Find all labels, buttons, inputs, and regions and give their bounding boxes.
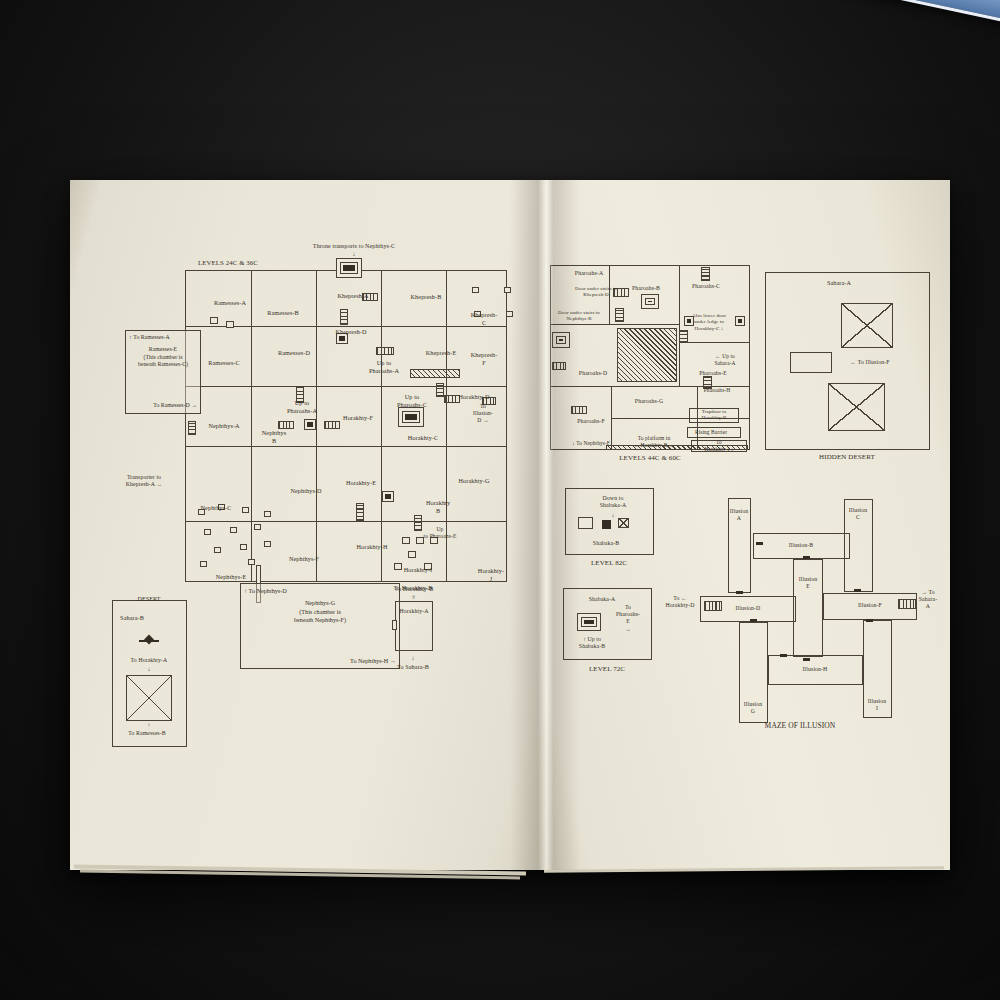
map-label: Shabaka-B xyxy=(593,540,619,547)
map-label: Illusion E xyxy=(799,576,818,590)
map-label: → To Sahara-A xyxy=(917,589,939,611)
map-label: Pharoahs-E xyxy=(699,370,727,377)
hidden-desert-panel: Sahara-A← To Illusion-FHIDDEN DESERT xyxy=(765,272,930,450)
map-label: ← To Illusion-F xyxy=(851,359,890,366)
map-label: LEVEL 72C xyxy=(589,665,625,674)
map-label: ↓ To Nephthys-F xyxy=(572,440,610,447)
desert-panel: DESERTSahara-BTo Horakhty-A↓↑To Ramesses… xyxy=(112,600,187,747)
map-label: Pharoahs-F xyxy=(577,418,604,425)
map-label: Also lower door under ledge to Horakhty-… xyxy=(692,313,726,332)
map-label: Illusion G xyxy=(744,701,763,715)
map-label: ↑ xyxy=(411,593,414,601)
map-label: Transporter to Khepresh-A → xyxy=(126,474,162,488)
level72-labels: Shabaka-ATo Pharoahs-E →↑ Up to Shabaka-… xyxy=(564,589,651,659)
map-label: To platform in ← Horakhty-B → xyxy=(634,435,675,449)
map-label: DESERT xyxy=(138,596,161,604)
map-label: To Sahara-B xyxy=(397,663,429,671)
map-label: Illusion I xyxy=(868,698,887,712)
maze-of-illusion: Illusion AIllusion CIllusion-BIllusion E… xyxy=(670,498,950,743)
map-label: Illusion-B xyxy=(789,542,814,549)
blue-object xyxy=(841,0,1000,50)
map-label: Horakhty-A xyxy=(399,608,428,615)
desert-labels: DESERTSahara-BTo Horakhty-A↓↑To Ramesses… xyxy=(113,601,186,746)
map-label: Down to Shabaka-A xyxy=(600,495,627,509)
booklet: LEVELS 24C & 36CThrone transports to Nep… xyxy=(70,180,950,870)
map-label: Rising Barrier xyxy=(695,429,727,436)
map-label: Trapdoor to Horakhty-B xyxy=(702,409,727,422)
map-label: Pharoahs-B xyxy=(632,285,660,292)
map-label: HIDDEN DESERT xyxy=(819,453,875,462)
map-label: Shabaka-A xyxy=(589,596,616,603)
map-label: Sahara-B xyxy=(120,614,144,622)
maze-labels: Illusion AIllusion CIllusion-BIllusion E… xyxy=(670,498,950,743)
hidden-desert-labels: Sahara-A← To Illusion-FHIDDEN DESERT xyxy=(766,273,929,449)
map-label: Door under stairs to Khepresh-D xyxy=(575,286,617,299)
map-label: ← Up to Sahara-A xyxy=(714,353,735,367)
map-label: ↓ xyxy=(147,665,150,673)
map-label: Illusion-H xyxy=(803,666,828,673)
map-label: LEVEL 82C xyxy=(591,559,627,568)
map-label: To Ramesses-B xyxy=(128,730,165,737)
map-label: To ← Horakhty-D xyxy=(665,595,694,609)
map-label: ↑ Up to Shabaka-B xyxy=(579,636,605,650)
map-label: Illusion-F xyxy=(858,602,882,609)
map-label: Illusion-D xyxy=(736,605,761,612)
map-label: ↓ xyxy=(411,654,414,662)
map-label: Illusion C xyxy=(849,507,868,521)
level-82c-panel: Down to Shabaka-A↓Shabaka-BLEVEL 82C xyxy=(565,488,654,555)
map-label: Sahara-A xyxy=(827,279,851,287)
map-label: Pharoahs-G xyxy=(635,398,663,405)
level-72c-panel: Shabaka-ATo Pharoahs-E →↑ Up to Shabaka-… xyxy=(563,588,652,660)
map-label: Pharoahs-D xyxy=(579,370,607,377)
map-label: To Pharoahs-E → xyxy=(616,604,640,633)
map-label: MAZE OF ILLUSION xyxy=(765,721,836,730)
map-label: Illusion A xyxy=(730,508,749,522)
photo-background: LEVELS 24C & 36CThrone transports to Nep… xyxy=(0,0,1000,1000)
map-label: Pharoahs-A xyxy=(575,270,603,277)
map-levels-44c-60c: LEVELS 44C & 60CPharoahs-ADoor under sta… xyxy=(550,265,750,450)
map-label: ↑ xyxy=(147,721,150,729)
level82-labels: Down to Shabaka-A↓Shabaka-BLEVEL 82C xyxy=(566,489,653,554)
map-label: ↓ xyxy=(611,511,614,519)
map-label: To Horakhty-B xyxy=(394,584,433,592)
map-label: Pharoahs-H xyxy=(704,387,730,394)
map-label: Pharoahs-C xyxy=(692,283,720,290)
blue-object-print xyxy=(854,0,1000,26)
map-label: LEVELS 44C & 60C xyxy=(619,454,681,463)
map-label: To Horakhty-A xyxy=(131,657,168,664)
map-label: To Horakhty-I ↓ xyxy=(704,439,734,453)
map-label: Door under stairs to Nephthys-B xyxy=(558,310,600,323)
map2-labels: LEVELS 44C & 60CPharoahs-ADoor under sta… xyxy=(551,266,749,449)
